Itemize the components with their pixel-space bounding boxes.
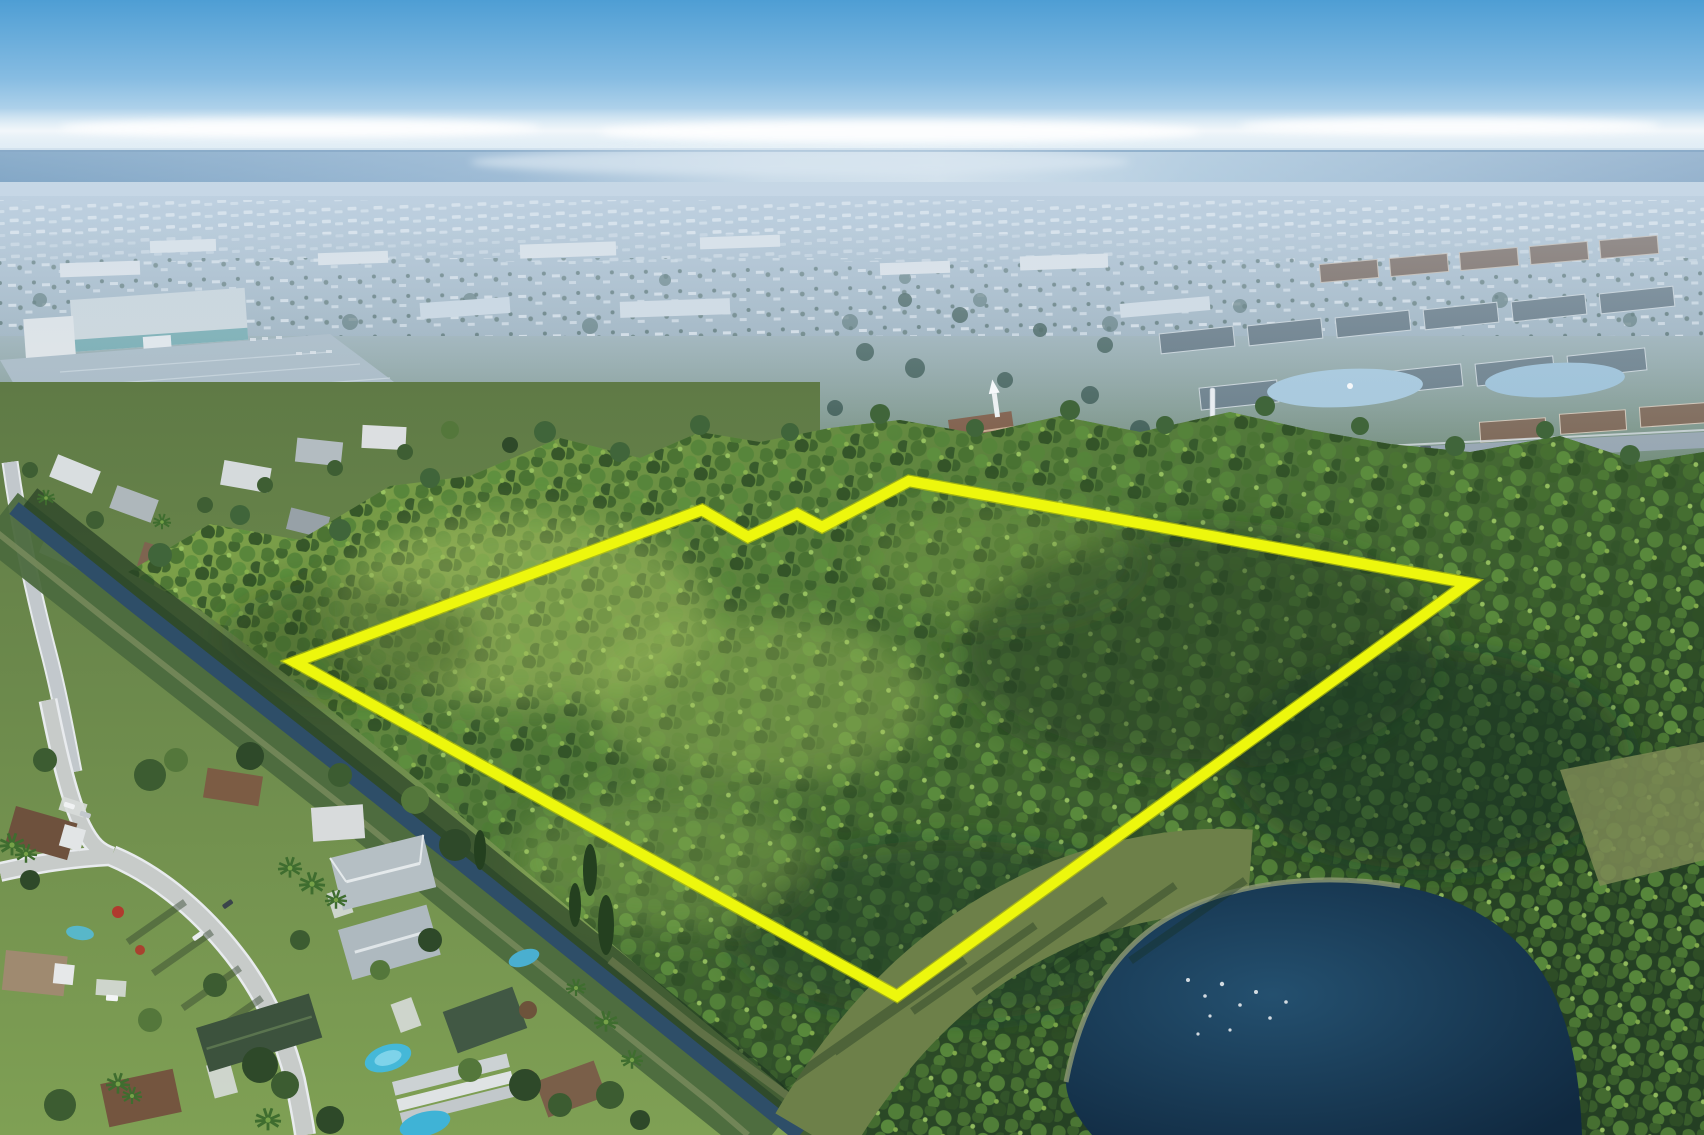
aerial-photo-canvas bbox=[0, 0, 1704, 1135]
flowering-bush bbox=[135, 945, 145, 955]
flowering-bush bbox=[112, 906, 124, 918]
tiki-hut bbox=[519, 1001, 537, 1019]
car bbox=[106, 995, 118, 1002]
aerial-photo bbox=[0, 0, 1704, 1135]
house-roof bbox=[311, 804, 365, 842]
sky bbox=[0, 0, 1704, 156]
